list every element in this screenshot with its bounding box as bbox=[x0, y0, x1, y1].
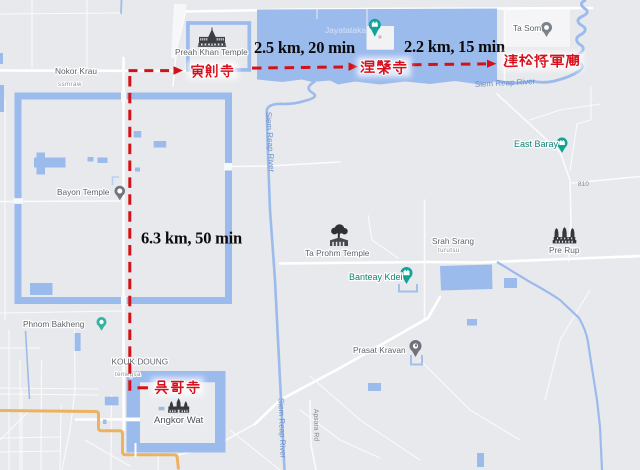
svg-text:Ta Prohm Temple: Ta Prohm Temple bbox=[305, 248, 370, 258]
svg-text:6.3 km, 50 min: 6.3 km, 50 min bbox=[141, 229, 242, 248]
svg-text:Bayon Temple: Bayon Temple bbox=[57, 187, 110, 197]
svg-text:turutsu: turutsu bbox=[438, 247, 460, 254]
svg-text:Preah Khan Temple: Preah Khan Temple bbox=[175, 47, 248, 57]
svg-text:Jayatataka: Jayatataka bbox=[325, 25, 366, 35]
svg-text:Ta Som: Ta Som bbox=[513, 23, 541, 33]
svg-text:Apsara Rd: Apsara Rd bbox=[312, 409, 320, 441]
svg-text:810: 810 bbox=[578, 181, 589, 188]
svg-text:Angkor Wat: Angkor Wat bbox=[154, 415, 204, 426]
svg-text:tenwgsa: tenwgsa bbox=[115, 371, 141, 378]
svg-text:2.5 km, 20 min: 2.5 km, 20 min bbox=[254, 38, 355, 57]
svg-text:Banteay Kdei: Banteay Kdei bbox=[349, 272, 403, 282]
svg-text:Nokor Krau: Nokor Krau bbox=[55, 66, 97, 76]
svg-text:Pre Rup: Pre Rup bbox=[549, 245, 580, 255]
svg-text:2.2 km, 15 min: 2.2 km, 15 min bbox=[404, 37, 505, 56]
svg-text:KOUK DOUNG: KOUK DOUNG bbox=[112, 357, 169, 367]
svg-text:East Baray: East Baray bbox=[514, 139, 559, 149]
svg-text:Srah Srang: Srah Srang bbox=[432, 236, 474, 246]
svg-text:Phnom Bakheng: Phnom Bakheng bbox=[23, 319, 85, 329]
svg-text:ssmraw: ssmraw bbox=[58, 81, 82, 88]
svg-text:Prasat Kravan: Prasat Kravan bbox=[353, 345, 406, 355]
